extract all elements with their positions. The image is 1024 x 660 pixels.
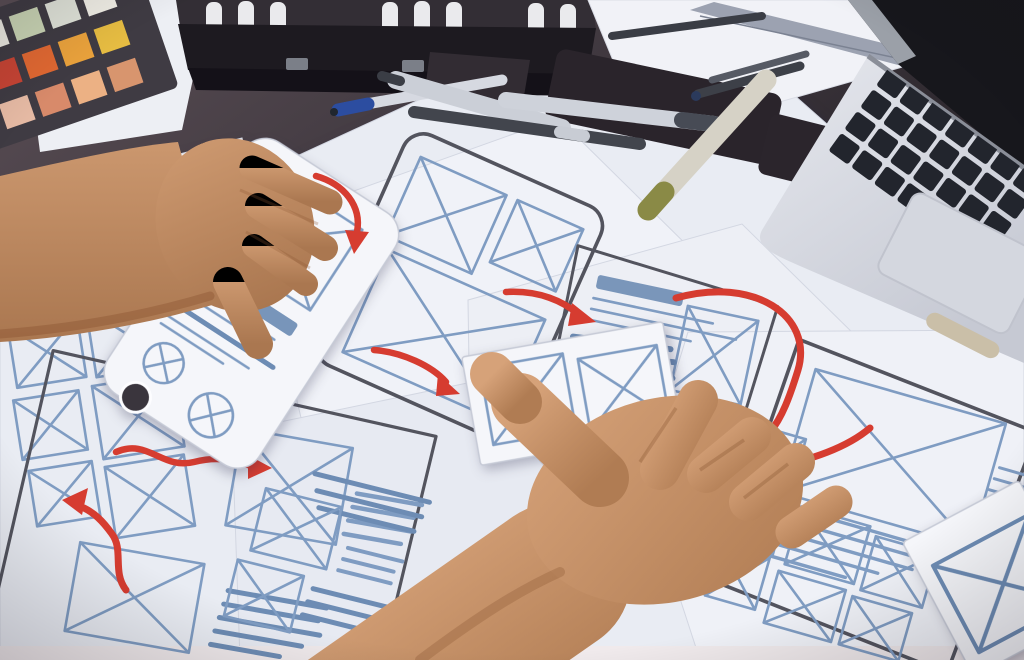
- vignette-overlay: [0, 0, 1024, 660]
- desk-photo: [0, 0, 1024, 660]
